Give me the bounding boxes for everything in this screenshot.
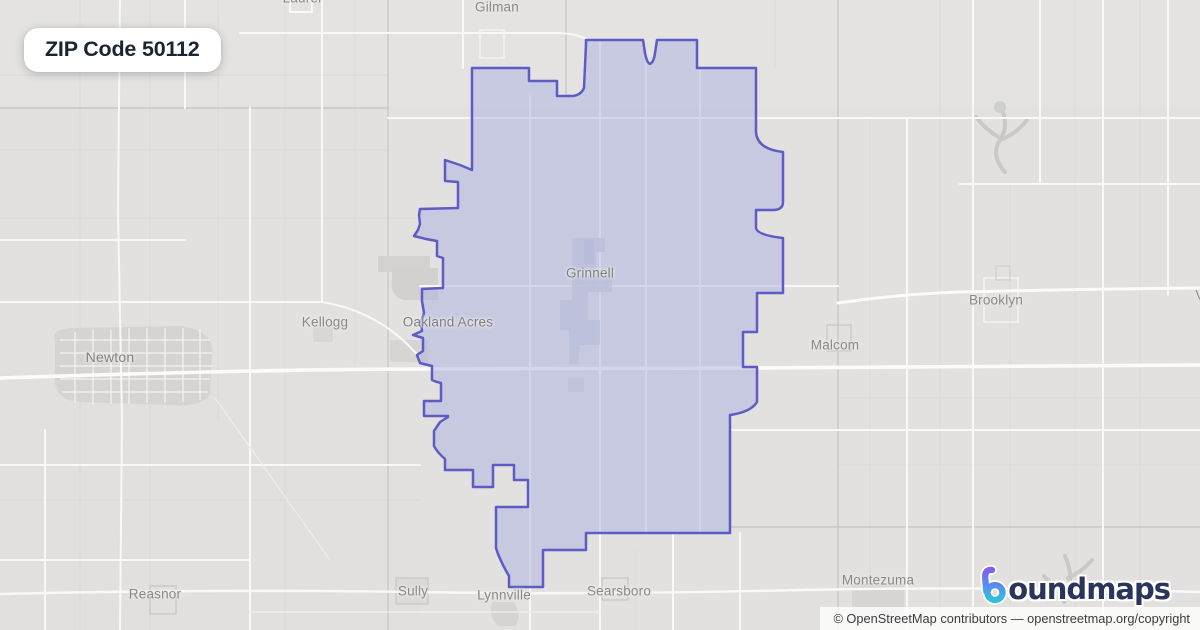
boundmaps-b-pin-icon (980, 565, 1007, 605)
kellogg-patch (313, 326, 333, 342)
attribution-text: © OpenStreetMap contributors — (833, 611, 1027, 626)
attribution-copyright-link[interactable]: openstreetmap.org/copyright (1027, 611, 1190, 626)
boundmaps-logo: oundmaps (980, 565, 1170, 605)
boundmaps-logo-text: oundmaps (1008, 575, 1170, 604)
attribution-bar: © OpenStreetMap contributors — openstree… (820, 607, 1200, 630)
map-screenshot: Laurel Gilman Kellogg Oakland Acres Newt… (0, 0, 1200, 630)
lynnville-patch (491, 602, 519, 626)
map-canvas[interactable] (0, 0, 1200, 630)
zip-code-badge: ZIP Code 50112 (24, 28, 221, 72)
zip-code-badge-label: ZIP Code 50112 (45, 37, 200, 61)
